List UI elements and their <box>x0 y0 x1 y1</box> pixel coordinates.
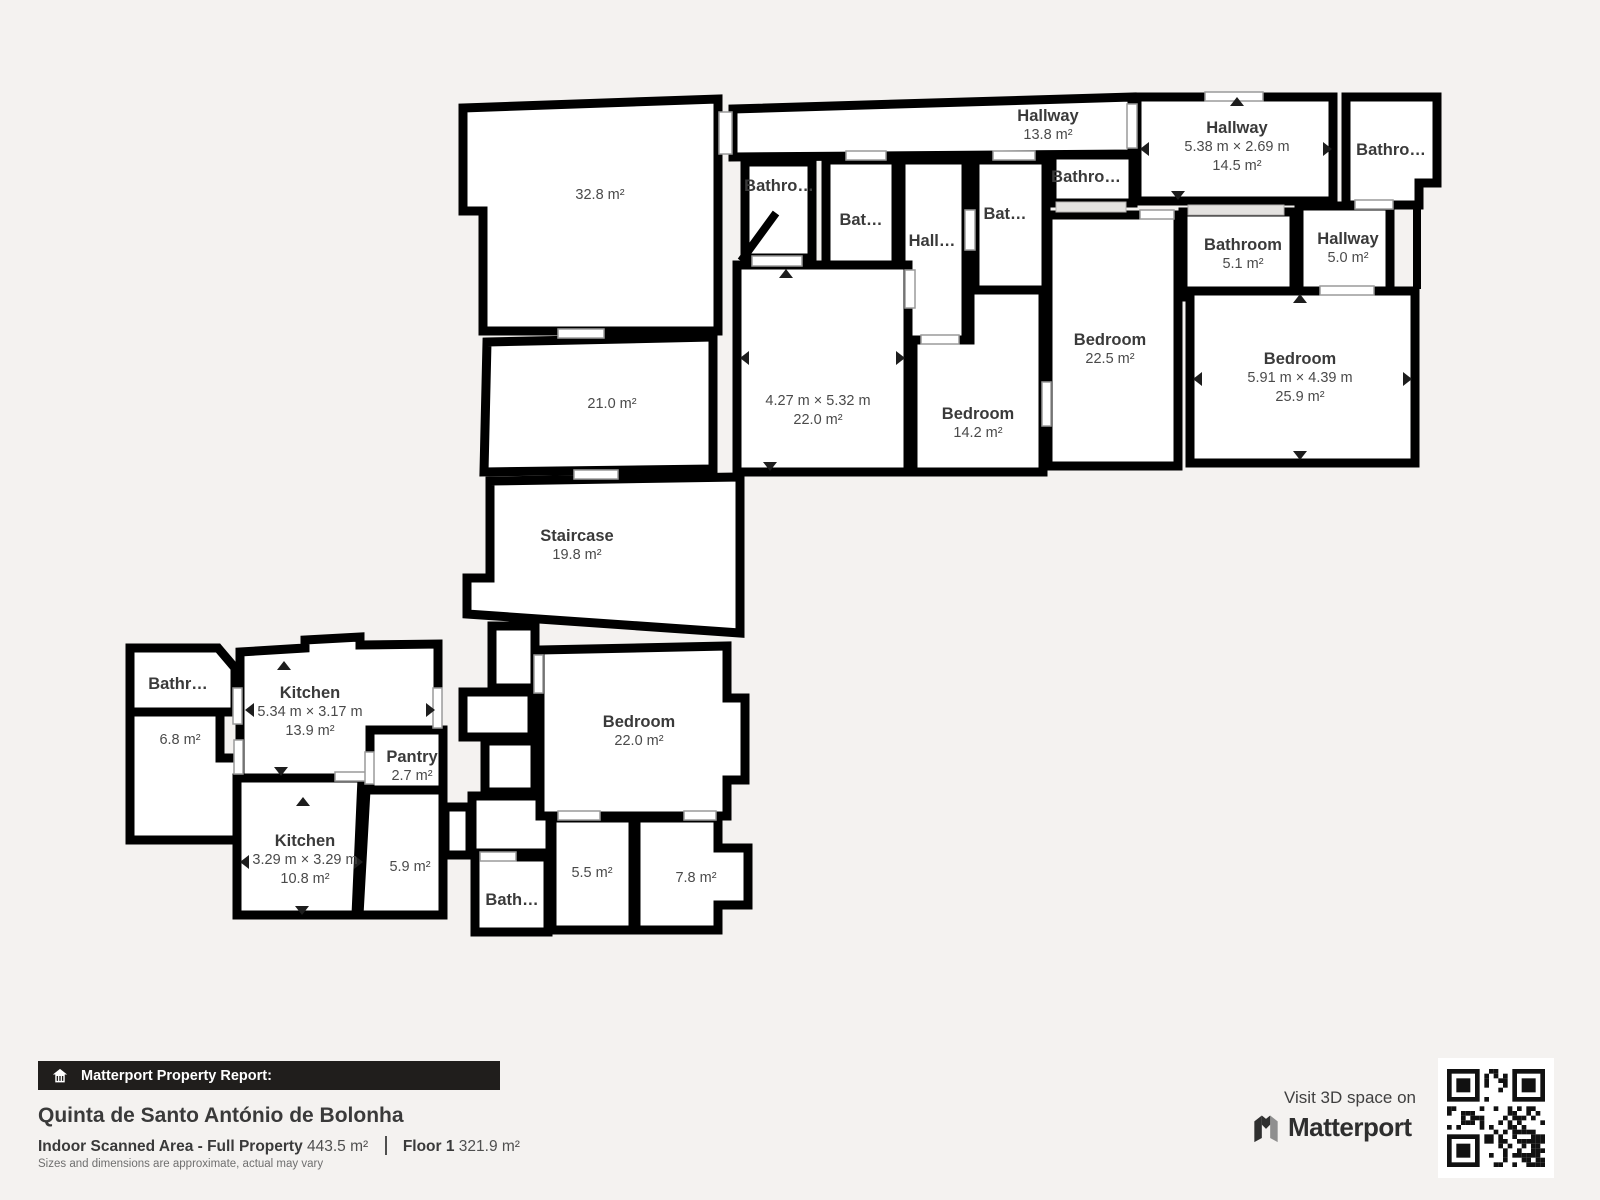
room-label-kitchen-10-8: Kitchen3.29 m × 3.29 m10.8 m² <box>252 832 357 889</box>
room-label-hallway-14-5: Hallway5.38 m × 2.69 m14.5 m² <box>1184 119 1289 176</box>
door-opening <box>233 688 242 724</box>
door-opening <box>1127 104 1137 148</box>
room-label-bathroom-e: Bathro… <box>1051 168 1121 187</box>
report-header-bar: Matterport Property Report: <box>38 1061 500 1090</box>
room-label-5-9: 5.9 m² <box>389 858 430 877</box>
qr-code <box>1438 1058 1554 1178</box>
door-opening <box>993 151 1035 160</box>
door-opening <box>433 688 442 728</box>
room-label-6-8: 6.8 m² <box>159 731 200 750</box>
door-opening <box>752 256 802 266</box>
door-opening <box>558 329 604 338</box>
room-label-32-8: 32.8 m² <box>575 186 624 205</box>
door-opening <box>1140 210 1174 219</box>
room-label-22-0: 4.27 m × 5.32 m22.0 m² <box>765 392 870 430</box>
door-opening <box>846 151 886 160</box>
door-opening <box>558 811 600 820</box>
matterport-logo-icon <box>1251 1113 1281 1143</box>
room-label-bedroom-22-5: Bedroom22.5 m² <box>1074 331 1146 369</box>
door-opening <box>574 470 618 479</box>
house-icon <box>51 1067 69 1085</box>
room-label-bathroom-5-1: Bathroom5.1 m² <box>1204 236 1282 274</box>
room-label-pantry: Pantry2.7 m² <box>386 748 437 786</box>
door-opening <box>1188 205 1284 215</box>
room-shapes <box>130 97 1437 932</box>
room-label-bath-small-center: Bath… <box>485 891 538 910</box>
qr-pattern <box>1447 1069 1545 1167</box>
corridor-cell <box>463 692 532 737</box>
room-label-bathroom-b: Bat… <box>839 211 882 230</box>
door-opening <box>365 752 374 784</box>
door-opening <box>534 655 543 693</box>
door-opening <box>1355 200 1393 209</box>
matterport-wordmark: Matterport <box>1288 1112 1412 1143</box>
area-summary: Indoor Scanned Area - Full Property 443.… <box>38 1136 520 1156</box>
room-label-bathroom-top-right: Bathro… <box>1356 141 1426 160</box>
door-opening <box>719 112 732 154</box>
door-opening <box>335 772 369 781</box>
corridor-cell <box>485 741 535 792</box>
divider <box>385 1136 387 1155</box>
room-shape-bathroom-d <box>975 160 1046 290</box>
door-opening <box>921 335 959 344</box>
scanned-area-label: Indoor Scanned Area - Full Property <box>38 1138 303 1155</box>
room-shape-32-8 <box>463 99 718 331</box>
door-opening <box>480 852 516 861</box>
room-label-staircase: Staircase19.8 m² <box>540 527 613 565</box>
disclaimer-text: Sizes and dimensions are approximate, ac… <box>38 1158 323 1170</box>
room-label-hall-c: Hall… <box>909 232 956 251</box>
room-label-21-0: 21.0 m² <box>587 395 636 414</box>
room-label-5-5: 5.5 m² <box>571 864 612 883</box>
matterport-floorplan-report: { "floorplan": { "rooms": [ {"id":"room-… <box>0 0 1600 1200</box>
visit-3d-label: Visit 3D space on <box>1260 1088 1440 1108</box>
room-label-bedroom-22-0b: Bedroom22.0 m² <box>603 713 675 751</box>
door-opening <box>1042 382 1051 426</box>
room-label-bedroom-14-2: Bedroom14.2 m² <box>942 405 1014 443</box>
room-label-bedroom-25-9: Bedroom5.91 m × 4.39 m25.9 m² <box>1247 350 1352 407</box>
room-label-kitchen-13-9: Kitchen5.34 m × 3.17 m13.9 m² <box>257 684 362 741</box>
room-label-bathroom-a: Bathro… <box>744 177 814 196</box>
room-label-hallway-13-8: Hallway13.8 m² <box>1017 107 1078 145</box>
door-opening <box>1205 92 1263 101</box>
door-opening <box>905 270 915 308</box>
room-label-7-8: 7.8 m² <box>675 869 716 888</box>
matterport-logo: Matterport <box>1251 1112 1412 1143</box>
corridor-cell <box>492 626 535 688</box>
door-opening <box>684 811 716 820</box>
corridor-cell <box>445 807 470 855</box>
door-opening <box>234 740 243 774</box>
floor-label: Floor 1 <box>403 1138 455 1155</box>
room-shape-22-0 <box>737 265 908 472</box>
room-shape-5-9 <box>359 790 443 915</box>
door-opening <box>965 210 975 250</box>
room-label-bathroom-d: Bat… <box>983 205 1026 224</box>
floor-value: 321.9 m² <box>459 1138 520 1155</box>
door-opening <box>1056 202 1126 212</box>
report-bar-label: Matterport Property Report: <box>81 1068 272 1084</box>
scanned-area-value: 443.5 m² <box>307 1138 368 1155</box>
door-opening <box>1320 286 1374 295</box>
room-label-bathroom-small-left: Bathr… <box>148 675 208 694</box>
property-title: Quinta de Santo António de Bolonha <box>38 1104 404 1128</box>
room-label-hallway-5-0: Hallway5.0 m² <box>1317 230 1378 268</box>
